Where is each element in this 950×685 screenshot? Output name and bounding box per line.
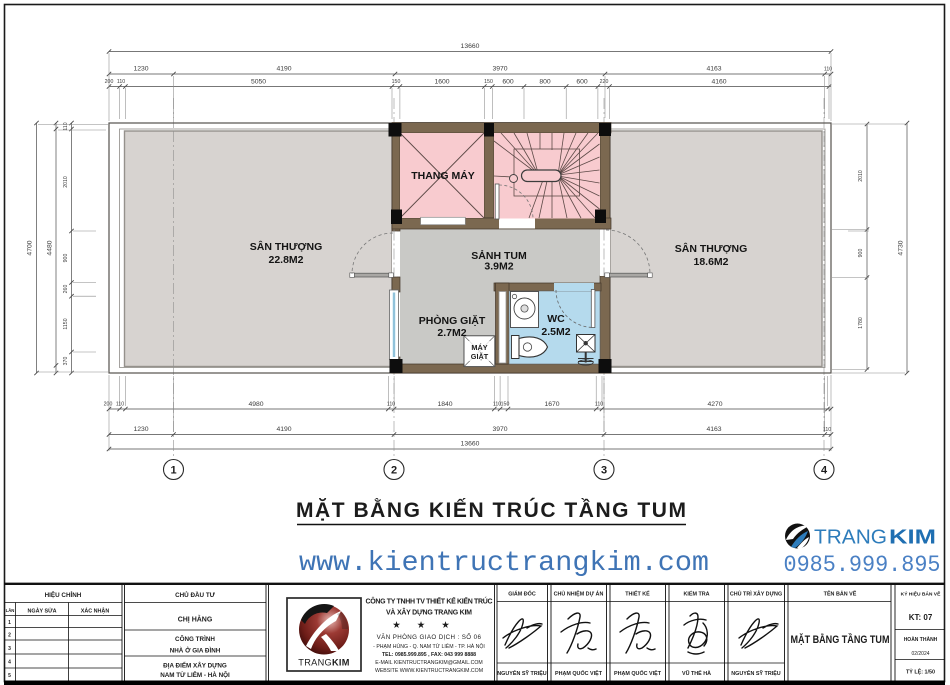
- svg-text:TỶ LỆ: 1/50: TỶ LỆ: 1/50: [906, 668, 935, 676]
- svg-text:1600: 1600: [434, 79, 449, 86]
- svg-text:CÔNG TRÌNH: CÔNG TRÌNH: [175, 634, 215, 643]
- svg-text:SÂN THƯỢNG: SÂN THƯỢNG: [250, 240, 323, 253]
- svg-text:220: 220: [600, 79, 609, 85]
- svg-text:TÊN BẢN VẼ: TÊN BẢN VẼ: [824, 590, 857, 598]
- svg-text:4480: 4480: [47, 240, 54, 255]
- svg-text:CHỦ TRÌ XÂY DỰNG: CHỦ TRÌ XÂY DỰNG: [730, 590, 782, 598]
- svg-text:0985.999.895: 0985.999.895: [784, 552, 941, 578]
- svg-text:3: 3: [601, 465, 607, 477]
- svg-text:4190: 4190: [276, 66, 291, 73]
- svg-text:110: 110: [116, 402, 124, 408]
- svg-text:2.5M2: 2.5M2: [541, 326, 570, 338]
- svg-text:GIẶT: GIẶT: [471, 352, 489, 361]
- svg-text:110: 110: [595, 402, 603, 408]
- svg-text:1: 1: [170, 465, 176, 477]
- svg-text:www.kientructrangkim.com: www.kientructrangkim.com: [299, 548, 709, 579]
- svg-text:PHÒNG GIẶT: PHÒNG GIẶT: [419, 314, 486, 327]
- svg-text:PHẠM QUỐC VIỆT: PHẠM QUỐC VIỆT: [555, 669, 603, 677]
- svg-text:KIỂM TRA: KIỂM TRA: [683, 591, 709, 598]
- svg-text:4160: 4160: [711, 79, 726, 86]
- svg-text:NGUYỄN SỸ TRIỆU: NGUYỄN SỸ TRIỆU: [731, 669, 781, 677]
- svg-text:3: 3: [8, 646, 11, 652]
- svg-text:SÂN THƯỢNG: SÂN THƯỢNG: [675, 242, 748, 255]
- svg-text:TRANG: TRANG: [814, 526, 887, 549]
- svg-text:1780: 1780: [858, 317, 864, 329]
- svg-text:TEL: 0985.999.895 , FAX: 043: TEL: 0985.999.895 , FAX: 043 999 8888: [382, 652, 476, 658]
- svg-text:2: 2: [8, 633, 11, 639]
- svg-text:1670: 1670: [544, 401, 559, 408]
- svg-text:PHẠM QUỐC VIỆT: PHẠM QUỐC VIỆT: [614, 669, 662, 677]
- svg-text:NGÀY SỬA: NGÀY SỬA: [28, 608, 57, 615]
- svg-text:KIM: KIM: [889, 526, 936, 549]
- svg-text:3970: 3970: [492, 426, 507, 433]
- svg-text:VŨ THẾ HÀ: VŨ THẾ HÀ: [682, 670, 711, 677]
- svg-text:2.7M2: 2.7M2: [437, 327, 466, 339]
- svg-text:150: 150: [501, 402, 510, 408]
- svg-text:900: 900: [63, 254, 69, 263]
- svg-text:1230: 1230: [133, 426, 148, 433]
- svg-text:600: 600: [576, 79, 588, 86]
- svg-text:MẶT BẰNG KIẾN TRÚC TẦNG TUM: MẶT BẰNG KIẾN TRÚC TẦNG TUM: [296, 498, 686, 522]
- svg-text:4190: 4190: [276, 426, 291, 433]
- svg-text:3.9M2: 3.9M2: [484, 261, 513, 273]
- svg-text:LẦN: LẦN: [6, 608, 15, 613]
- svg-text:E-MAIL KIENTRUCTRANGKIM@GMAIL.: E-MAIL KIENTRUCTRANGKIM@GMAIL.COM: [375, 660, 482, 666]
- svg-text:110: 110: [117, 79, 125, 85]
- svg-text:NHÀ Ở GIA ĐÌNH: NHÀ Ở GIA ĐÌNH: [170, 646, 221, 655]
- svg-text:1840: 1840: [437, 401, 452, 408]
- svg-text:HIỆU CHỈNH: HIỆU CHỈNH: [45, 590, 82, 599]
- svg-text:900: 900: [858, 249, 864, 258]
- svg-text:CHỊ HẰNG: CHỊ HẰNG: [178, 615, 213, 624]
- svg-text:5050: 5050: [251, 79, 266, 86]
- svg-text:13660: 13660: [461, 441, 480, 448]
- svg-text:WEBSITE WWW.KIENTRUCTRANGKIM.C: WEBSITE WWW.KIENTRUCTRANGKIM.COM: [375, 668, 483, 674]
- svg-text:- PHẠM HÙNG - Q. NAM TỪ LIÊM -: - PHẠM HÙNG - Q. NAM TỪ LIÊM - TP. HÀ NỘ…: [373, 642, 485, 650]
- svg-text:MÁY: MÁY: [471, 343, 487, 352]
- svg-text:XÁC NHẬN: XÁC NHẬN: [81, 608, 110, 615]
- svg-text:370: 370: [63, 357, 69, 366]
- svg-text:★★★: ★★★: [392, 620, 466, 631]
- svg-text:2: 2: [391, 465, 397, 477]
- svg-text:150: 150: [392, 79, 401, 85]
- svg-text:600: 600: [502, 79, 514, 86]
- svg-text:200: 200: [104, 402, 113, 408]
- svg-text:CHỦ NHIỆM DỰ ÁN: CHỦ NHIỆM DỰ ÁN: [554, 590, 604, 598]
- svg-text:WC: WC: [547, 313, 565, 325]
- svg-text:4270: 4270: [707, 401, 722, 408]
- svg-text:4: 4: [821, 465, 828, 477]
- svg-text:HOÀN THÀNH: HOÀN THÀNH: [904, 636, 938, 643]
- svg-text:KT: 07: KT: 07: [909, 613, 933, 622]
- svg-text:5: 5: [8, 673, 11, 679]
- svg-text:THIẾT KẾ: THIẾT KẾ: [625, 591, 650, 598]
- svg-text:260: 260: [63, 285, 69, 294]
- svg-text:2010: 2010: [63, 176, 69, 188]
- svg-text:2010: 2010: [858, 170, 864, 182]
- svg-text:VÀ XÂY DỰNG TRANG KIM: VÀ XÂY DỰNG TRANG KIM: [386, 608, 472, 617]
- svg-text:NAM TỪ LIÊM - HÀ NỘI: NAM TỪ LIÊM - HÀ NỘI: [160, 670, 230, 679]
- svg-text:ĐỊA ĐIỂM XÂY DỰNG: ĐỊA ĐIỂM XÂY DỰNG: [163, 661, 227, 670]
- svg-text:22.8M2: 22.8M2: [268, 254, 303, 266]
- svg-text:THANG MÁY: THANG MÁY: [411, 169, 475, 182]
- svg-text:1230: 1230: [133, 66, 148, 73]
- svg-text:18.6M2: 18.6M2: [693, 256, 728, 268]
- svg-text:NGUYỄN SỸ TRIỆU: NGUYỄN SỸ TRIỆU: [497, 669, 547, 677]
- svg-text:4: 4: [8, 660, 11, 666]
- svg-text:4163: 4163: [706, 426, 721, 433]
- svg-text:110: 110: [63, 122, 69, 130]
- svg-text:TRANGKIM: TRANGKIM: [298, 658, 349, 668]
- svg-text:4163: 4163: [706, 66, 721, 73]
- svg-text:GIÁM ĐỐC: GIÁM ĐỐC: [508, 591, 536, 598]
- svg-text:4730: 4730: [898, 240, 905, 255]
- svg-text:4700: 4700: [27, 240, 34, 255]
- svg-text:1: 1: [8, 620, 11, 626]
- svg-text:4980: 4980: [248, 401, 263, 408]
- svg-text:800: 800: [539, 79, 551, 86]
- svg-text:1150: 1150: [63, 318, 69, 329]
- svg-text:150: 150: [484, 79, 493, 85]
- svg-text:MẶT BẰNG TẦNG TUM: MẶT BẰNG TẦNG TUM: [791, 633, 890, 646]
- svg-text:02/2024: 02/2024: [911, 651, 929, 657]
- svg-text:VĂN PHÒNG GIAO DỊCH : SỐ 06: VĂN PHÒNG GIAO DỊCH : SỐ 06: [377, 634, 482, 641]
- svg-text:3970: 3970: [492, 66, 507, 73]
- svg-text:13660: 13660: [461, 43, 480, 50]
